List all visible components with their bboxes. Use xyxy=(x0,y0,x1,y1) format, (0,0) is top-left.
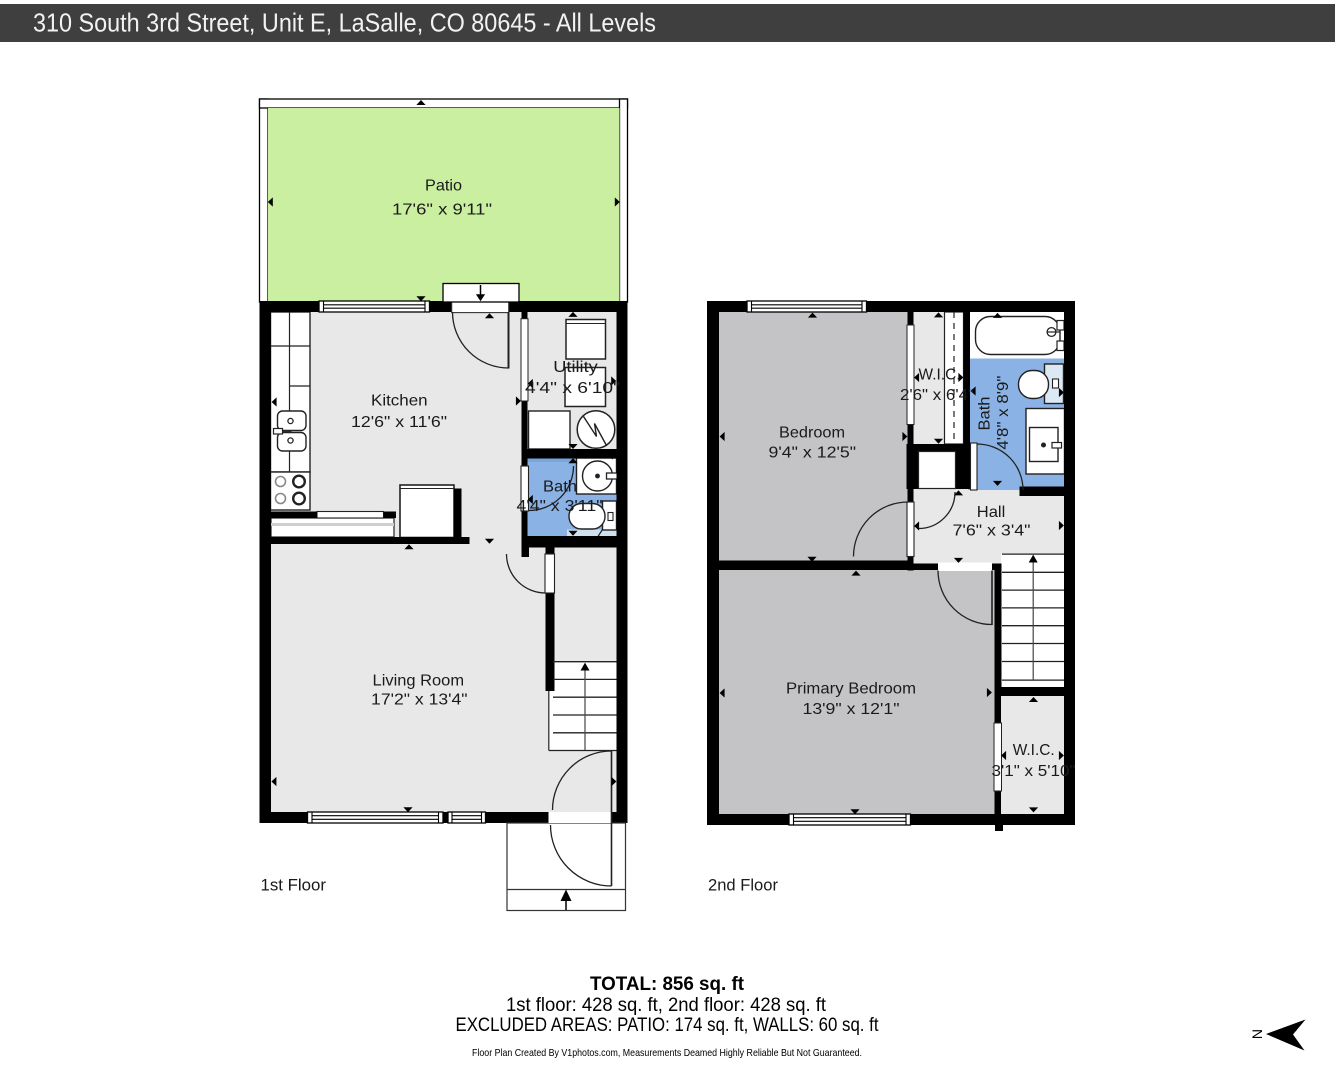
svg-text:Bath: Bath xyxy=(976,397,993,431)
svg-text:Hall: Hall xyxy=(977,504,1006,521)
svg-text:EXCLUDED AREAS: PATIO: 174 sq.: EXCLUDED AREAS: PATIO: 174 sq. ft, WALLS… xyxy=(456,1015,880,1036)
svg-text:310 South 3rd Street, Unit E,: 310 South 3rd Street, Unit E, LaSalle, C… xyxy=(33,8,656,38)
svg-text:4'4" x 6'10": 4'4" x 6'10" xyxy=(525,380,620,397)
svg-text:4'8" x 8'9": 4'8" x 8'9" xyxy=(995,376,1012,450)
svg-text:Patio: Patio xyxy=(425,178,462,195)
svg-text:9'4" x 12'5": 9'4" x 12'5" xyxy=(769,445,857,462)
svg-text:12'6" x 11'6": 12'6" x 11'6" xyxy=(351,414,447,431)
svg-text:W.I.C.: W.I.C. xyxy=(919,367,961,384)
svg-text:Primary Bedroom: Primary Bedroom xyxy=(786,681,916,698)
svg-text:Kitchen: Kitchen xyxy=(371,393,428,410)
svg-text:17'2" x 13'4": 17'2" x 13'4" xyxy=(371,691,468,708)
svg-text:Utility: Utility xyxy=(553,359,598,376)
svg-text:4'4" x 3'11": 4'4" x 3'11" xyxy=(517,498,603,515)
svg-text:Floor Plan Created By V1photos: Floor Plan Created By V1photos.com, Meas… xyxy=(472,1047,862,1059)
svg-text:Bedroom: Bedroom xyxy=(779,425,845,442)
svg-text:2'6" x 6'4": 2'6" x 6'4" xyxy=(900,387,974,404)
svg-text:W.I.C.: W.I.C. xyxy=(1013,742,1055,759)
svg-text:2nd Floor: 2nd Floor xyxy=(708,877,778,895)
svg-text:1st Floor: 1st Floor xyxy=(261,877,327,895)
svg-text:TOTAL: 856 sq. ft: TOTAL: 856 sq. ft xyxy=(590,974,745,995)
svg-text:Living Room: Living Room xyxy=(373,672,465,689)
svg-text:N: N xyxy=(1249,1029,1265,1039)
svg-text:3'1" x 5'10": 3'1" x 5'10" xyxy=(992,763,1076,780)
svg-text:1st floor: 428 sq. ft, 2nd flo: 1st floor: 428 sq. ft, 2nd floor: 428 sq… xyxy=(506,995,827,1016)
svg-text:13'9" x 12'1": 13'9" x 12'1" xyxy=(803,701,900,718)
svg-text:Bath: Bath xyxy=(543,479,577,496)
svg-text:7'6" x 3'4": 7'6" x 3'4" xyxy=(953,523,1031,540)
svg-text:17'6" x 9'11": 17'6" x 9'11" xyxy=(392,202,492,219)
